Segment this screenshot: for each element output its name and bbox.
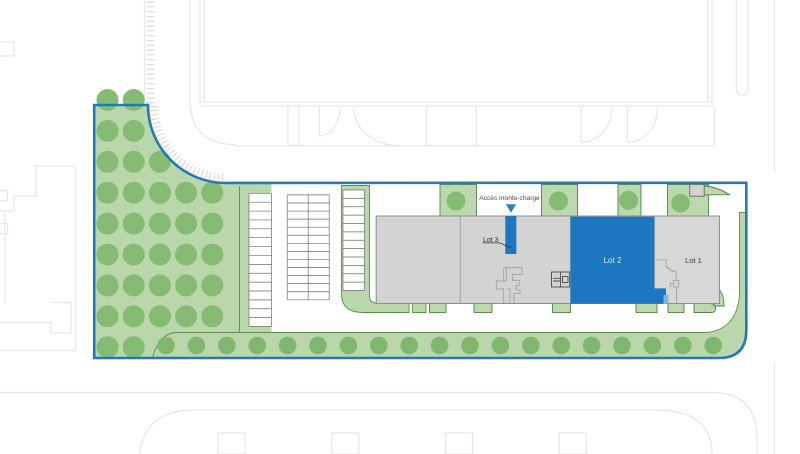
svg-text:Accès monte-charge: Accès monte-charge — [479, 195, 540, 202]
svg-text:Lot 1: Lot 1 — [685, 256, 702, 265]
svg-text:Lot 2: Lot 2 — [604, 256, 622, 265]
